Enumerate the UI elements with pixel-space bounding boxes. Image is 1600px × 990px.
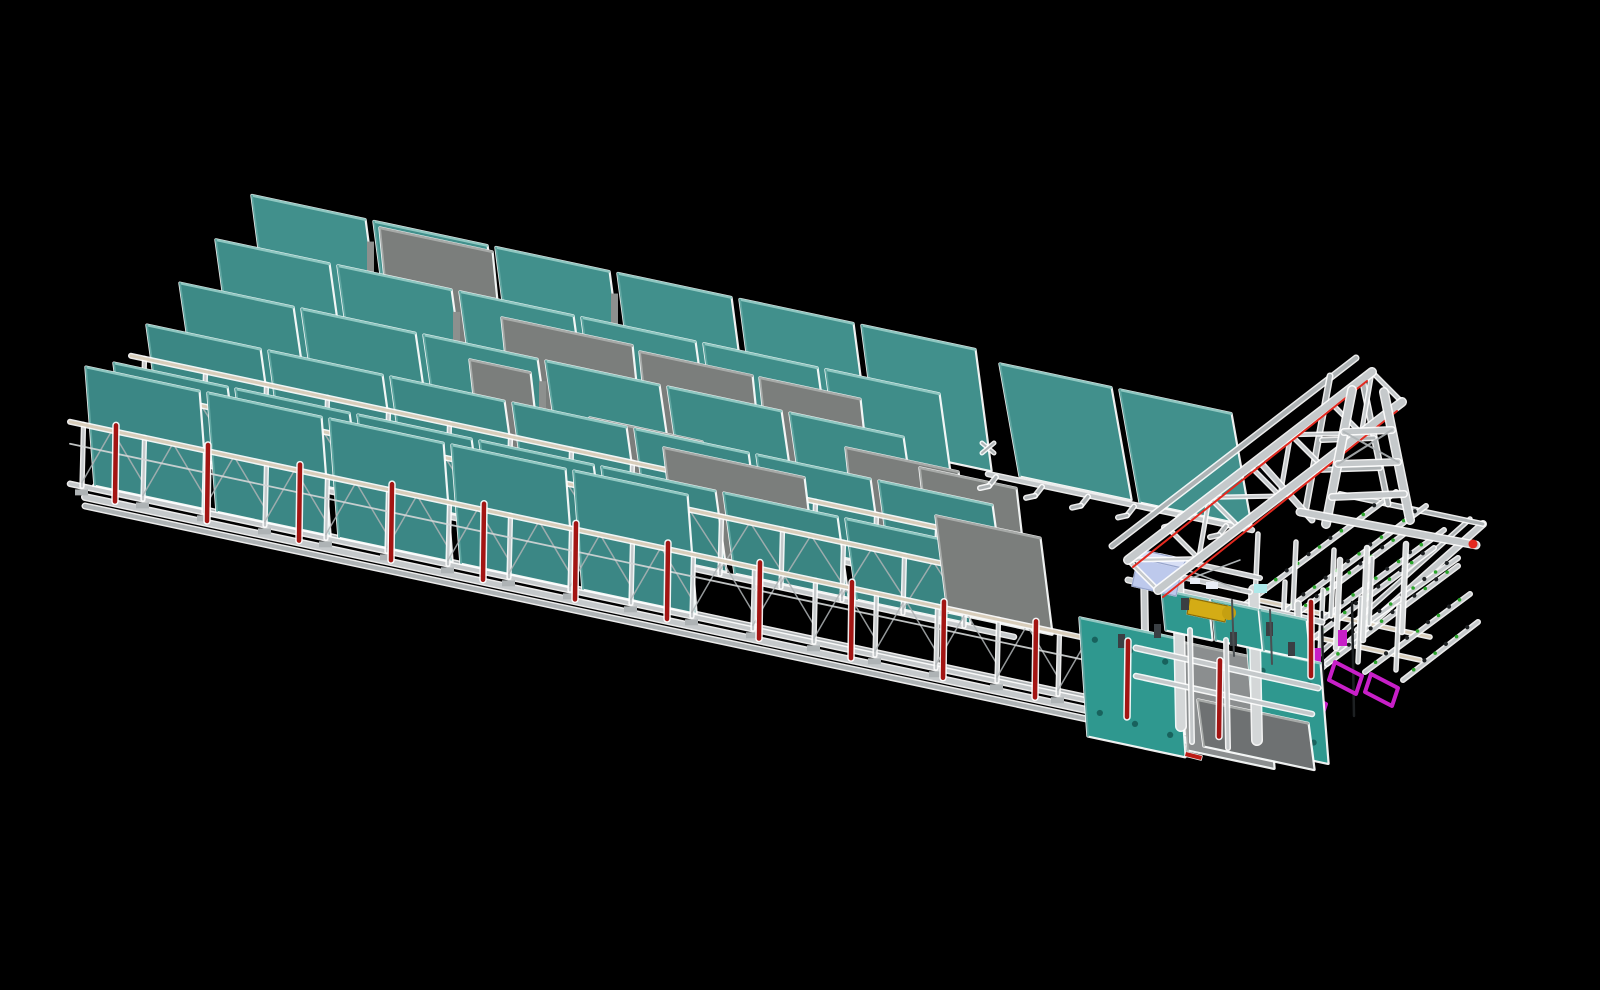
load-station [1080,550,1328,769]
glass-panel-field [70,196,1164,717]
cad-render-canvas [0,0,1600,990]
right-panel-rack [980,364,1252,537]
cad-viewport [0,0,1600,990]
